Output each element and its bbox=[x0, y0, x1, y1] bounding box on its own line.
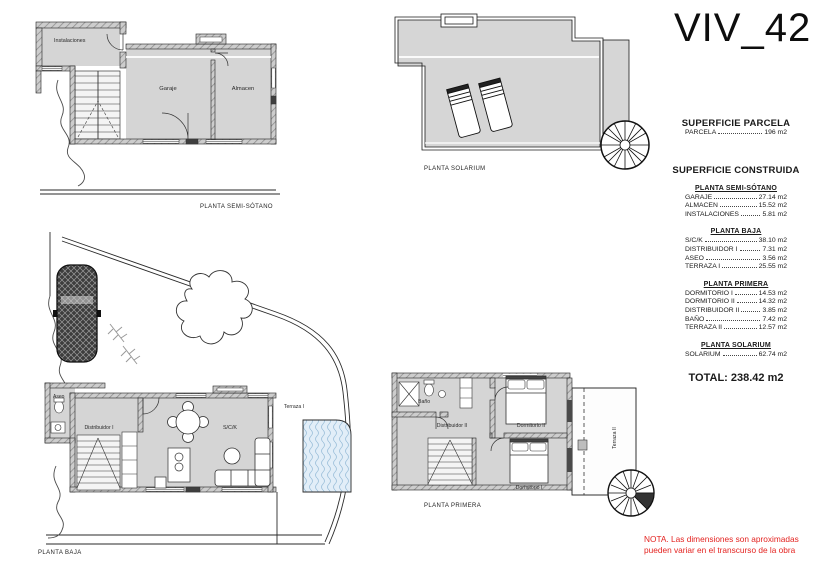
dotted-leader bbox=[722, 267, 757, 268]
label-terraza-2: Terraza II bbox=[612, 427, 618, 449]
bed-dormitorio-1 bbox=[510, 439, 548, 483]
section-heading: PLANTA BAJA bbox=[656, 228, 816, 235]
area-value: 3.85 m2 bbox=[762, 307, 787, 316]
label-dormitorio-2: Dormitorio II bbox=[517, 423, 545, 429]
section-heading: PLANTA PRIMERA bbox=[656, 281, 816, 288]
room-instalaciones bbox=[42, 28, 120, 66]
dotted-leader bbox=[706, 320, 760, 321]
area-value: 38.10 m2 bbox=[759, 237, 787, 246]
total-area: TOTAL: 238.42 m2 bbox=[656, 372, 816, 384]
section-baja: PLANTA BAJA S/C/K38.10 m2 DISTRIBUIDOR I… bbox=[656, 228, 816, 271]
section-heading: PLANTA SOLARIUM bbox=[656, 342, 816, 349]
area-value: 12.57 m2 bbox=[759, 324, 787, 333]
stairs bbox=[77, 435, 120, 490]
pool bbox=[303, 420, 351, 492]
tree bbox=[176, 271, 252, 344]
stairs bbox=[428, 438, 472, 485]
label-distribuidor-1: Distribuidor I bbox=[84, 425, 113, 431]
built-heading: SUPERFICIE CONSTRUIDA bbox=[656, 165, 816, 176]
fern-plant bbox=[108, 324, 140, 364]
area-label: INSTALACIONES bbox=[685, 211, 739, 220]
floorplan-primera: Baño Distribuidor II Dormitorio II Dormi… bbox=[388, 360, 658, 525]
area-row: ALMACEN15.52 m2 bbox=[685, 202, 787, 211]
dotted-leader bbox=[741, 215, 761, 216]
parcel-heading: SUPERFICIE PARCELA bbox=[656, 118, 816, 129]
area-value: 7.42 m2 bbox=[762, 316, 787, 325]
area-value: 5.81 m2 bbox=[762, 211, 787, 220]
spiral-staircase bbox=[601, 121, 649, 169]
parcel-label: PARCELA bbox=[685, 129, 716, 138]
label-instalaciones: Instalaciones bbox=[54, 38, 86, 44]
area-label: GARAJE bbox=[685, 194, 712, 203]
dotted-leader bbox=[714, 198, 756, 199]
area-row: DORMITORIO II14.32 m2 bbox=[685, 298, 787, 307]
label-almacen: Almacen bbox=[232, 86, 255, 92]
area-row: TERRAZA I25.55 m2 bbox=[685, 263, 787, 272]
area-label: S/C/K bbox=[685, 237, 703, 246]
label-bano: Baño bbox=[418, 399, 430, 405]
dotted-leader bbox=[723, 355, 757, 356]
skylight bbox=[441, 14, 477, 27]
caption-baja: PLANTA BAJA bbox=[38, 550, 82, 556]
label-sck: S/C/K bbox=[223, 425, 237, 431]
drawing-title: VIV_42 bbox=[674, 6, 814, 51]
area-row: TERRAZA II12.57 m2 bbox=[685, 324, 787, 333]
dotted-leader bbox=[735, 294, 757, 295]
area-label: DORMITORIO II bbox=[685, 298, 735, 307]
area-row: DORMITORIO I14.53 m2 bbox=[685, 290, 787, 299]
area-row: GARAJE27.14 m2 bbox=[685, 194, 787, 203]
caption-primera: PLANTA PRIMERA bbox=[424, 503, 481, 509]
area-value: 27.14 m2 bbox=[759, 194, 787, 203]
dotted-leader bbox=[740, 250, 761, 251]
area-row: SOLARIUM62.74 m2 bbox=[685, 351, 787, 360]
area-row: ASEO3.56 m2 bbox=[685, 255, 787, 264]
area-row: S/C/K38.10 m2 bbox=[685, 237, 787, 246]
area-label: ALMACEN bbox=[685, 202, 718, 211]
section-semisotano: PLANTA SEMI-SÓTANO GARAJE27.14 m2 ALMACE… bbox=[656, 185, 816, 220]
section-solarium: PLANTA SOLARIUM SOLARIUM62.74 m2 bbox=[656, 342, 816, 360]
area-value: 62.74 m2 bbox=[759, 351, 787, 360]
area-value: 15.52 m2 bbox=[759, 202, 787, 211]
area-value: 14.53 m2 bbox=[759, 290, 787, 299]
section-heading: PLANTA SEMI-SÓTANO bbox=[656, 185, 816, 192]
area-value: 14.32 m2 bbox=[759, 298, 787, 307]
area-label: DISTRIBUIDOR II bbox=[685, 307, 739, 316]
dotted-leader bbox=[720, 206, 757, 207]
area-row: INSTALACIONES5.81 m2 bbox=[685, 211, 787, 220]
car bbox=[53, 265, 101, 362]
dotted-leader bbox=[718, 133, 762, 134]
area-label: DORMITORIO I bbox=[685, 290, 733, 299]
parcel-row: PARCELA 196 m2 bbox=[685, 129, 787, 138]
area-row: DISTRIBUIDOR II3.85 m2 bbox=[685, 307, 787, 316]
label-garaje: Garaje bbox=[159, 86, 176, 92]
area-label: TERRAZA II bbox=[685, 324, 722, 333]
spiral-staircase bbox=[608, 470, 654, 516]
section-primera: PLANTA PRIMERA DORMITORIO I14.53 m2 DORM… bbox=[656, 281, 816, 333]
area-value: 7.31 m2 bbox=[762, 246, 787, 255]
note-line-2: pueden variar en el transcurso de la obr… bbox=[644, 545, 819, 556]
area-label: ASEO bbox=[685, 255, 704, 264]
bed-dormitorio-2 bbox=[506, 376, 546, 424]
label-aseo: Aseo bbox=[53, 394, 65, 400]
caption-solarium: PLANTA SOLARIUM bbox=[424, 166, 486, 172]
dotted-leader bbox=[705, 241, 757, 242]
area-label: SOLARIUM bbox=[685, 351, 721, 360]
cabinet bbox=[122, 432, 137, 488]
area-row: DISTRIBUIDOR I7.31 m2 bbox=[685, 246, 787, 255]
parcel-value: 196 m2 bbox=[764, 129, 787, 138]
note-line-1: NOTA. Las dimensiones son aproximadas bbox=[644, 534, 819, 545]
dotted-leader bbox=[737, 302, 757, 303]
label-dormitorio-1: Dormitorio I bbox=[516, 485, 543, 491]
area-label: TERRAZA I bbox=[685, 263, 720, 272]
area-value: 3.56 m2 bbox=[762, 255, 787, 264]
dotted-leader bbox=[724, 328, 757, 329]
label-terraza-1: Terraza I bbox=[284, 404, 304, 410]
area-value: 25.55 m2 bbox=[759, 263, 787, 272]
surface-tables: SUPERFICIE PARCELA PARCELA 196 m2 SUPERF… bbox=[656, 118, 816, 384]
dotted-leader bbox=[706, 259, 761, 260]
area-label: DISTRIBUIDOR I bbox=[685, 246, 738, 255]
plot-edge-line bbox=[40, 190, 280, 194]
closet bbox=[460, 378, 472, 408]
label-distribuidor-2: Distribuidor II bbox=[437, 423, 468, 429]
drawing-sheet: Instalaciones Garaje Almacen PLANTA SEMI… bbox=[0, 0, 819, 571]
area-row: BAÑO7.42 m2 bbox=[685, 316, 787, 325]
room-garaje-almacen bbox=[126, 49, 271, 139]
area-label: BAÑO bbox=[685, 316, 704, 325]
stairwell bbox=[75, 71, 120, 139]
dimensions-note: NOTA. Las dimensiones son aproximadas pu… bbox=[644, 534, 819, 555]
caption-semisotano: PLANTA SEMI-SÓTANO bbox=[200, 204, 273, 210]
floorplan-semisotano: Instalaciones Garaje Almacen bbox=[28, 8, 308, 204]
dotted-leader bbox=[741, 311, 760, 312]
floorplan-solarium bbox=[386, 4, 656, 176]
floorplan-baja: Aseo Distribuidor I S/C/K Terraza I bbox=[26, 226, 381, 551]
